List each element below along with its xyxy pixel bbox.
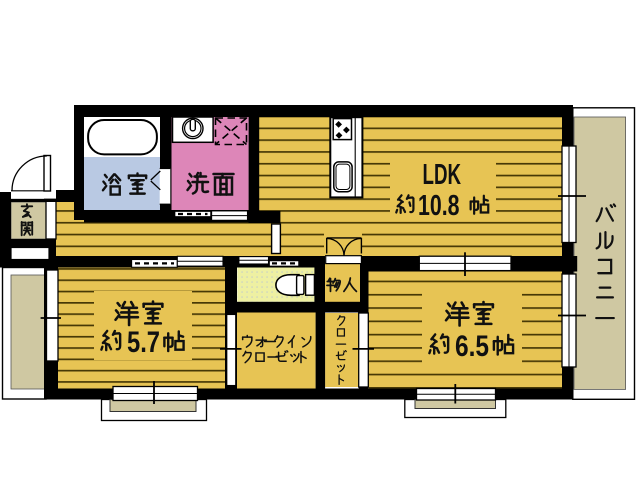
svg-text:5.7: 5.7 — [127, 326, 160, 359]
svg-text:10.8: 10.8 — [418, 190, 460, 222]
svg-text:LDK: LDK — [423, 159, 462, 191]
svg-text:6.5: 6.5 — [455, 330, 489, 363]
